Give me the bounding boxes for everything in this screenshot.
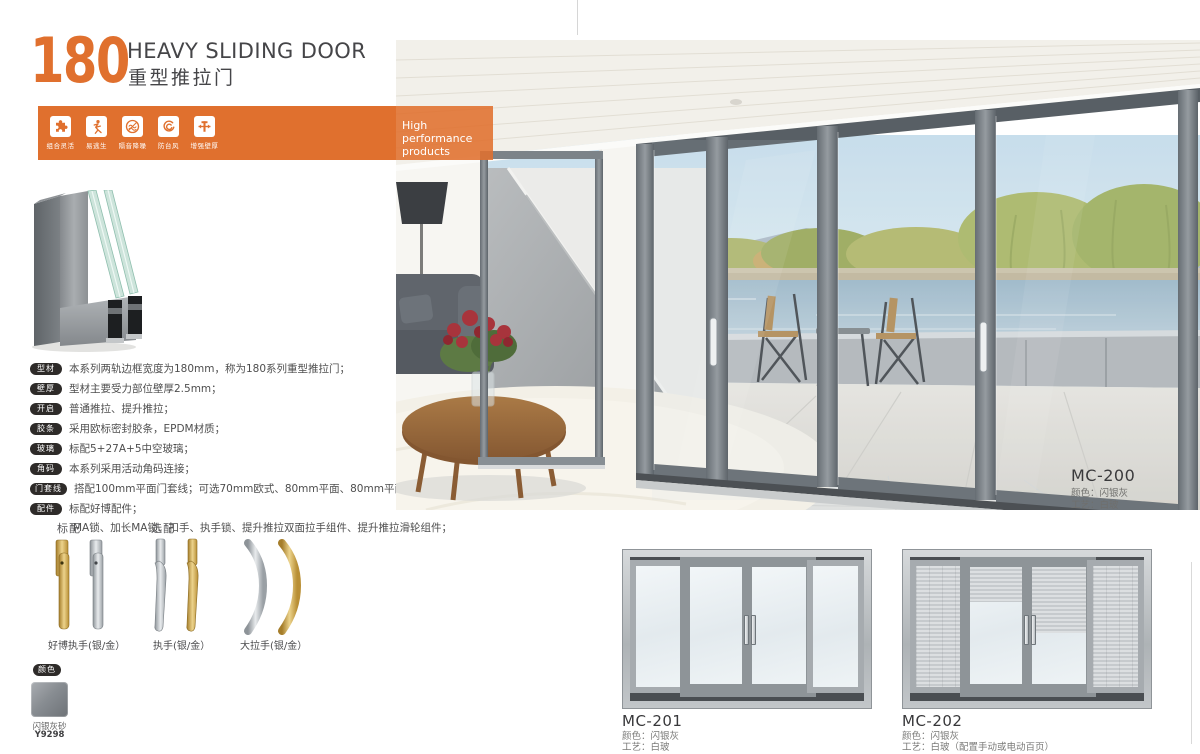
diagram-cavity: [630, 557, 864, 701]
spec-text: 采用欧标密封胶条，EPDM材质；: [69, 422, 225, 436]
pull-handle-caption: 大拉手(银/金）: [240, 637, 307, 652]
spec-row: 胶条采用欧标密封胶条，EPDM材质；: [30, 422, 420, 436]
spec-tag: 胶条: [30, 423, 62, 435]
optional-config-label: 选配: [151, 520, 175, 536]
hero-photo: [396, 40, 1200, 510]
spec-tag: 玻璃: [30, 443, 62, 455]
spec-text: 标配好博配件；: [69, 502, 143, 516]
soundproof-icon: [122, 116, 143, 137]
door-handle-icon: [751, 615, 756, 645]
typhoon-icon: [158, 116, 179, 137]
lever-handle-caption: 执手(银/金）: [153, 637, 210, 652]
spec-row: 玻璃标配5+27A+5中空玻璃；: [30, 442, 420, 456]
spec-tag: 角码: [30, 463, 62, 475]
door-handle-icon: [744, 615, 749, 645]
feature-item: 防台风: [155, 116, 182, 150]
product-color-line: 颜色：闪银灰: [902, 731, 959, 742]
spec-text: 型材主要受力部位壁厚2.5mm；: [69, 382, 222, 396]
color-swatch: [31, 682, 68, 717]
spec-row: 型材本系列两轨边框宽度为180mm，称为180系列重型推拉门；: [30, 362, 420, 376]
feature-banner: 组合灵活 易逃生 隔音降噪 防台风: [38, 106, 396, 160]
spec-row: 壁厚型材主要受力部位壁厚2.5mm；: [30, 382, 420, 396]
hobo-handle-image: [48, 537, 122, 639]
door-diagram-mc202: [902, 549, 1152, 709]
fixed-panel: [630, 560, 687, 693]
pull-handle-image: [238, 539, 302, 639]
spec-text: 标配5+27A+5中空玻璃；: [69, 442, 194, 456]
hero-color-line: 颜色：闪银灰: [1071, 488, 1135, 500]
hero-model: MC-200: [1071, 466, 1135, 485]
page-title-cn: 重型推拉门: [128, 63, 236, 90]
fixed-louver-panel: [910, 560, 967, 693]
top-divider: [577, 0, 578, 35]
profile-section-image: [24, 190, 142, 359]
lever-handle-image: [148, 537, 212, 639]
fixed-panel: [807, 560, 864, 693]
spec-text: 普通推拉、提升推拉；: [69, 402, 174, 416]
product-model: MC-202: [902, 712, 962, 730]
spec-text: 本系列两轨边框宽度为180mm，称为180系列重型推拉门；: [69, 362, 350, 376]
feature-item: 隔音降噪: [119, 116, 146, 150]
door-handle-icon: [1024, 615, 1029, 645]
feature-item: 组合灵活: [47, 116, 74, 150]
product-craft-line: 工艺：白玻（配置手动或电动百页）: [902, 742, 1054, 753]
running-man-icon: [86, 116, 107, 137]
wall-thickness-icon: [194, 116, 215, 137]
product-model: MC-201: [622, 712, 682, 730]
spec-row: 开启普通推拉、提升推拉；: [30, 402, 420, 416]
standard-config-label: 标配: [57, 520, 81, 536]
blind-overlay: [1032, 567, 1086, 633]
spec-tag: 开启: [30, 403, 62, 415]
spec-tag: 配件: [30, 503, 62, 515]
hero-product-label: MC-200 颜色：闪银灰 工艺：白玻: [1071, 466, 1135, 511]
color-tag: 颜色: [33, 664, 61, 676]
spec-accessories-detail: MA锁、加长MA锁、扣手、执手锁、提升推拉双面拉手组件、提升推拉滑轮组件；: [73, 521, 420, 535]
page-title: HEAVY SLIDING DOOR: [127, 39, 366, 63]
feature-item: 易逃生: [83, 116, 110, 150]
right-divider: [1191, 562, 1192, 744]
spec-row: 门套线搭配100mm平面门套线；可选70mm欧式、80mm平面、80mm平面；: [30, 482, 420, 496]
feature-item: 增强壁厚: [191, 116, 218, 150]
diagram-cavity: [910, 557, 1144, 701]
spec-text: 本系列采用活动角码连接；: [69, 462, 195, 476]
hobo-handle-caption: 好博执手(银/金）: [48, 637, 125, 652]
door-diagram-mc201: [622, 549, 872, 709]
color-swatch-code: Y9298: [31, 730, 68, 740]
fixed-louver-panel: [1087, 560, 1144, 693]
spec-text: 搭配100mm平面门套线；可选70mm欧式、80mm平面、80mm平面；: [74, 482, 415, 496]
spec-tag: 壁厚: [30, 383, 62, 395]
product-craft-line: 工艺：白玻: [622, 742, 670, 753]
door-handle-icon: [1031, 615, 1036, 645]
spec-tag: 门套线: [30, 483, 67, 495]
puzzle-icon: [50, 116, 71, 137]
spec-row: 角码本系列采用活动角码连接；: [30, 462, 420, 476]
spec-row: 配件标配好博配件；: [30, 502, 420, 516]
banner-tagline: High performance products: [396, 106, 493, 160]
spec-tag: 型材: [30, 363, 62, 375]
product-color-line: 颜色：闪银灰: [622, 731, 679, 742]
spec-list: 型材本系列两轨边框宽度为180mm，称为180系列重型推拉门； 壁厚型材主要受力…: [30, 362, 420, 535]
catalog-page: 180 HEAVY SLIDING DOOR 重型推拉门: [0, 0, 1200, 754]
hero-craft-line: 工艺：白玻: [1071, 500, 1135, 512]
blind-overlay: [970, 567, 1024, 602]
